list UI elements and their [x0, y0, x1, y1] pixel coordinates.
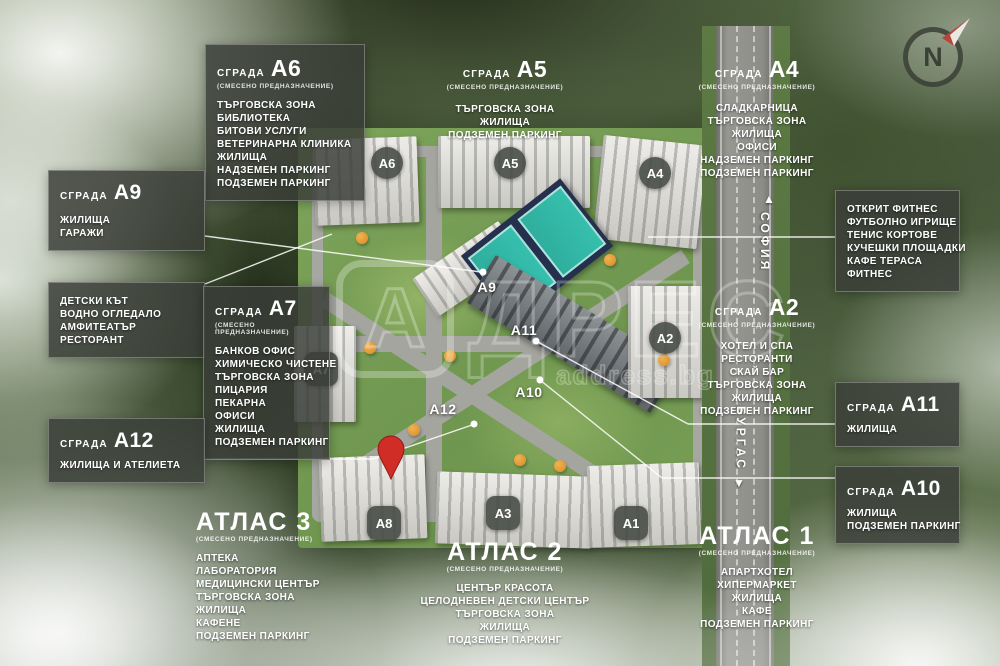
compass-icon: N	[903, 27, 963, 87]
amenity-line: ЛАБОРАТОРИЯ	[196, 565, 396, 578]
amenities-list: АПТЕКАЛАБОРАТОРИЯМЕДИЦИНСКИ ЦЕНТЪРТЪРГОВ…	[196, 552, 396, 643]
amenity-line: АМФИТЕАТЪР	[60, 321, 193, 334]
amenity-line: СЛАДКАРНИЦА	[672, 102, 842, 115]
building-code: A2	[769, 294, 799, 321]
amenity-line: ПЕКАРНА	[215, 397, 318, 410]
panel-title: СГРАДА A9	[60, 181, 193, 205]
amenity-line: ЖИЛИЩА	[662, 592, 852, 605]
tree	[364, 342, 376, 354]
amenity-line: КУЧЕШКИ ПЛОЩАДКИ	[847, 242, 948, 255]
building-code: A12	[114, 429, 154, 453]
amenity-line: ТЪРГОВСКА ЗОНА	[375, 608, 635, 621]
building-code: A6	[271, 55, 301, 82]
building-code: A10	[901, 477, 941, 501]
panel-building-a11: СГРАДА A11 ЖИЛИЩА	[835, 382, 960, 447]
amenity-line: ВЕТЕРИНАРНА КЛИНИКА	[217, 138, 353, 151]
building-kicker: СГРАДА	[60, 191, 108, 202]
amenities-list: БАНКОВ ОФИСХИМИЧЕСКО ЧИСТЕНЕТЪРГОВСКА ЗО…	[215, 345, 318, 449]
building-kicker: СГРАДА	[847, 403, 895, 414]
label-building-a4: СГРАДА A4 (СМЕСЕНО ПРЕДНАЗНАЧЕНИЕ) СЛАДК…	[672, 56, 842, 180]
sofia-direction-arrow-icon: ▲	[763, 192, 775, 206]
map-label-a10[interactable]: A10	[515, 384, 542, 400]
amenities-list: ЖИЛИЩА	[847, 423, 948, 436]
mixed-use-note: (СМЕСЕНО ПРЕДНАЗНАЧЕНИЕ)	[196, 536, 396, 543]
building-code: A4	[769, 56, 799, 83]
panel-building-a9: СГРАДА A9 ЖИЛИЩАГАРАЖИ	[48, 170, 205, 251]
amenity-line: СКАЙ БАР	[672, 366, 842, 379]
label-atlas-2: АТЛАС 2 (СМЕСЕНО ПРЕДНАЗНАЧЕНИЕ) ЦЕНТЪР …	[375, 540, 635, 647]
amenity-line: ПОДЗЕМЕН ПАРКИНГ	[847, 520, 948, 533]
burgas-direction-arrow-icon: ▼	[733, 476, 745, 490]
amenity-line: ОТКРИТ ФИТНЕС	[847, 203, 948, 216]
amenity-line: ТЪРГОВСКА ЗОНА	[196, 591, 396, 604]
map-marker-a4[interactable]: A4	[639, 157, 671, 189]
tree	[604, 254, 616, 266]
building-kicker: СГРАДА	[715, 69, 763, 80]
tree	[444, 350, 456, 362]
building-kicker: СГРАДА	[847, 487, 895, 498]
amenity-line: ПИЦАРИЯ	[215, 384, 318, 397]
amenities-list: ДЕТСКИ КЪТВОДНО ОГЛЕДАЛОАМФИТЕАТЪРРЕСТОР…	[60, 295, 193, 347]
map-label-a11[interactable]: A11	[511, 322, 537, 338]
amenity-line: ПОДЗЕМЕН ПАРКИНГ	[395, 129, 615, 142]
amenity-line: ПОДЗЕМЕН ПАРКИНГ	[215, 436, 318, 449]
tree	[658, 354, 670, 366]
panel-building-a10: СГРАДА A10 ЖИЛИЩАПОДЗЕМЕН ПАРКИНГ	[835, 466, 960, 544]
map-marker-a3[interactable]: A3	[486, 496, 520, 530]
panel-title: СГРАДА A6	[217, 55, 353, 82]
amenity-line: ПОДЗЕМЕН ПАРКИНГ	[375, 634, 635, 647]
amenity-line: ПОДЗЕМЕН ПАРКИНГ	[196, 630, 396, 643]
amenity-line: ХИМИЧЕСКО ЧИСТЕНЕ	[215, 358, 318, 371]
map-label-a9[interactable]: A9	[478, 279, 497, 295]
compass-north-letter: N	[923, 42, 943, 73]
label-building-a5: СГРАДА A5 (СМЕСЕНО ПРЕДНАЗНАЧЕНИЕ) ТЪРГО…	[395, 56, 615, 142]
amenity-line: ЖИЛИЩА	[672, 128, 842, 141]
amenity-line: ТЪРГОВСКА ЗОНА	[672, 379, 842, 392]
amenity-line: ЖИЛИЩА	[672, 392, 842, 405]
amenity-line: ТЪРГОВСКА ЗОНА	[672, 115, 842, 128]
amenities-list: ОТКРИТ ФИТНЕСФУТБОЛНО ИГРИЩЕТЕНИС КОРТОВ…	[847, 203, 948, 281]
site-plan-poster: А ДРЕС address.bg A6 A5 A4 A2 A7 A8 A3 A…	[0, 0, 1000, 666]
amenities-list: ЖИЛИЩАГАРАЖИ	[60, 214, 193, 240]
atlas-title: АТЛАС 3	[196, 510, 396, 535]
amenity-line: ПОДЗЕМЕН ПАРКИНГ	[217, 177, 353, 190]
tree	[356, 232, 368, 244]
panel-title: СГРАДА A12	[60, 429, 193, 453]
amenity-line: ФУТБОЛНО ИГРИЩЕ	[847, 216, 948, 229]
building-code: A5	[517, 56, 547, 83]
map-label-a12[interactable]: A12	[429, 401, 456, 417]
panel-title: СГРАДА A5	[395, 56, 615, 83]
amenity-line: ЖИЛИЩА	[847, 423, 948, 436]
amenity-line: БИБЛИОТЕКА	[217, 112, 353, 125]
amenity-line: МЕДИЦИНСКИ ЦЕНТЪР	[196, 578, 396, 591]
amenities-list: ТЪРГОВСКА ЗОНАЖИЛИЩАПОДЗЕМЕН ПАРКИНГ	[395, 103, 615, 142]
amenity-line: ОФИСИ	[672, 141, 842, 154]
map-marker-a6[interactable]: A6	[371, 147, 403, 179]
building-kicker: СГРАДА	[215, 307, 263, 318]
amenity-line: ТЕНИС КОРТОВЕ	[847, 229, 948, 242]
amenity-line: АПТЕКА	[196, 552, 396, 565]
panel-building-a6: СГРАДА A6 (СМЕСЕНО ПРЕДНАЗНАЧЕНИЕ) ТЪРГО…	[205, 44, 365, 201]
amenity-line: ЖИЛИЩА	[395, 116, 615, 129]
amenity-line: РЕСТОРАНТИ	[672, 353, 842, 366]
road-label-sofia: СОФИЯ	[758, 212, 772, 272]
panel-building-a12: СГРАДА A12 ЖИЛИЩА И АТЕЛИЕТА	[48, 418, 205, 483]
mixed-use-note: (СМЕСЕНО ПРЕДНАЗНАЧЕНИЕ)	[662, 550, 852, 557]
mixed-use-note: (СМЕСЕНО ПРЕДНАЗНАЧЕНИЕ)	[375, 566, 635, 573]
amenity-line: БИТОВИ УСЛУГИ	[217, 125, 353, 138]
amenities-list: ЖИЛИЩАПОДЗЕМЕН ПАРКИНГ	[847, 507, 948, 533]
amenity-line: ОФИСИ	[215, 410, 318, 423]
building-kicker: СГРАДА	[60, 439, 108, 450]
atlas-title: АТЛАС 2	[375, 540, 635, 565]
amenity-line: ДЕТСКИ КЪТ	[60, 295, 193, 308]
amenity-line: НАДЗЕМЕН ПАРКИНГ	[217, 164, 353, 177]
mixed-use-note: (СМЕСЕНО ПРЕДНАЗНАЧЕНИЕ)	[672, 322, 842, 329]
amenity-line: ЖИЛИЩА И АТЕЛИЕТА	[60, 459, 193, 472]
building-code: A11	[901, 393, 940, 417]
atlas-title: АТЛАС 1	[662, 524, 852, 549]
amenity-line: ХОТЕЛ И СПА	[672, 340, 842, 353]
amenities-list: ТЪРГОВСКА ЗОНАБИБЛИОТЕКАБИТОВИ УСЛУГИВЕТ…	[217, 99, 353, 190]
amenity-line: ГАРАЖИ	[60, 227, 193, 240]
amenities-list: ЖИЛИЩА И АТЕЛИЕТА	[60, 459, 193, 472]
amenity-line: ЖИЛИЩА	[847, 507, 948, 520]
amenity-line: РЕСТОРАНТ	[60, 334, 193, 347]
mixed-use-note: (СМЕСЕНО ПРЕДНАЗНАЧЕНИЕ)	[217, 83, 353, 90]
label-atlas-3: АТЛАС 3 (СМЕСЕНО ПРЕДНАЗНАЧЕНИЕ) АПТЕКАЛ…	[196, 510, 396, 643]
amenity-line: КАФЕ	[662, 605, 852, 618]
amenities-list: АПАРТХОТЕЛХИПЕРМАРКЕТЖИЛИЩАКАФЕПОДЗЕМЕН …	[662, 566, 852, 631]
amenity-line: ЦЕНТЪР КРАСОТА	[375, 582, 635, 595]
panel-amenities-west: ДЕТСКИ КЪТВОДНО ОГЛЕДАЛОАМФИТЕАТЪРРЕСТОР…	[48, 282, 205, 358]
amenity-line: ЖИЛИЩА	[375, 621, 635, 634]
panel-title: СГРАДА A4	[672, 56, 842, 83]
amenity-line: ЦЕЛОДНЕВЕН ДЕТСКИ ЦЕНТЪР	[375, 595, 635, 608]
amenities-list: ХОТЕЛ И СПАРЕСТОРАНТИСКАЙ БАРТЪРГОВСКА З…	[672, 340, 842, 418]
amenity-line: ВОДНО ОГЛЕДАЛО	[60, 308, 193, 321]
mixed-use-note: (СМЕСЕНО ПРЕДНАЗНАЧЕНИЕ)	[672, 84, 842, 91]
panel-title: СГРАДА A7	[215, 297, 318, 321]
amenities-list: СЛАДКАРНИЦАТЪРГОВСКА ЗОНАЖИЛИЩАОФИСИНАДЗ…	[672, 102, 842, 180]
amenity-line: БАНКОВ ОФИС	[215, 345, 318, 358]
label-building-a2: СГРАДА A2 (СМЕСЕНО ПРЕДНАЗНАЧЕНИЕ) ХОТЕЛ…	[672, 294, 842, 418]
amenity-line: ТЪРГОВСКА ЗОНА	[217, 99, 353, 112]
amenity-line: ПОДЗЕМЕН ПАРКИНГ	[662, 618, 852, 631]
amenity-line: ЖИЛИЩА	[217, 151, 353, 164]
building-kicker: СГРАДА	[463, 69, 511, 80]
tree	[408, 424, 420, 436]
building-code: A9	[114, 181, 142, 205]
amenity-line: ФИТНЕС	[847, 268, 948, 281]
amenity-line: КАФЕНЕ	[196, 617, 396, 630]
mixed-use-note: (СМЕСЕНО ПРЕДНАЗНАЧЕНИЕ)	[215, 322, 318, 336]
building-kicker: СГРАДА	[217, 68, 265, 79]
amenity-line: КАФЕ ТЕРАСА	[847, 255, 948, 268]
mixed-use-note: (СМЕСЕНО ПРЕДНАЗНАЧЕНИЕ)	[395, 84, 615, 91]
amenity-line: НАДЗЕМЕН ПАРКИНГ	[672, 154, 842, 167]
building-kicker: СГРАДА	[715, 307, 763, 318]
building-code: A7	[269, 297, 297, 321]
amenity-line: ХИПЕРМАРКЕТ	[662, 579, 852, 592]
amenity-line: ПОДЗЕМЕН ПАРКИНГ	[672, 167, 842, 180]
amenity-line: ЖИЛИЩА	[215, 423, 318, 436]
amenity-line: ЖИЛИЩА	[196, 604, 396, 617]
amenity-line: ПОДЗЕМЕН ПАРКИНГ	[672, 405, 842, 418]
panel-building-a7: СГРАДА A7 (СМЕСЕНО ПРЕДНАЗНАЧЕНИЕ) БАНКО…	[203, 286, 330, 460]
tree	[514, 454, 526, 466]
amenity-line: ТЪРГОВСКА ЗОНА	[395, 103, 615, 116]
amenity-line: ЖИЛИЩА	[60, 214, 193, 227]
map-marker-a5[interactable]: A5	[494, 147, 526, 179]
panel-title: СГРАДА A11	[847, 393, 948, 417]
label-atlas-1: АТЛАС 1 (СМЕСЕНО ПРЕДНАЗНАЧЕНИЕ) АПАРТХО…	[662, 524, 852, 631]
amenity-line: ТЪРГОВСКА ЗОНА	[215, 371, 318, 384]
amenities-list: ЦЕНТЪР КРАСОТАЦЕЛОДНЕВЕН ДЕТСКИ ЦЕНТЪРТЪ…	[375, 582, 635, 647]
panel-title: СГРАДА A2	[672, 294, 842, 321]
tree	[554, 460, 566, 472]
panel-amenities-east: ОТКРИТ ФИТНЕСФУТБОЛНО ИГРИЩЕТЕНИС КОРТОВ…	[835, 190, 960, 292]
panel-title: СГРАДА A10	[847, 477, 948, 501]
amenity-line: АПАРТХОТЕЛ	[662, 566, 852, 579]
map-marker-a1[interactable]: A1	[614, 506, 648, 540]
road-label-burgas: БУРГАС	[734, 406, 748, 471]
